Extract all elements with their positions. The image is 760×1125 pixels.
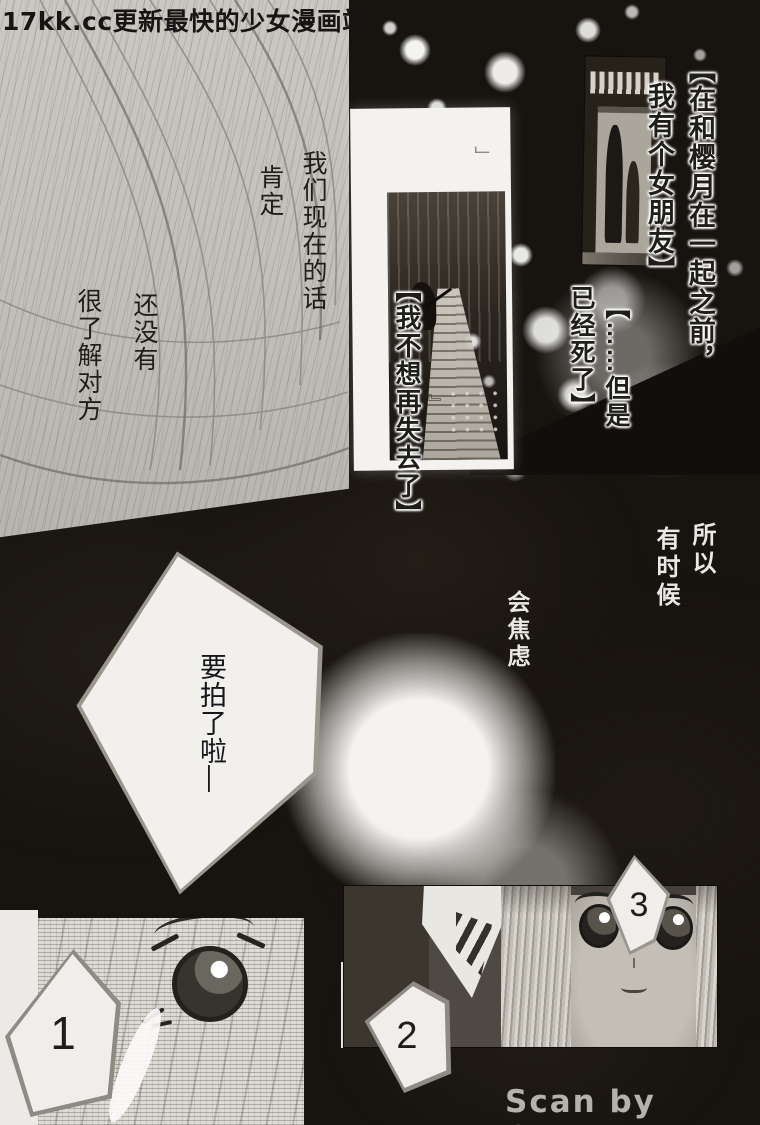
panel-number-1: 1: [50, 1006, 76, 1060]
monologue-current-line2: 肯定: [252, 164, 288, 218]
monologue-so-line1: 所以: [684, 522, 719, 578]
eye-closeup: [172, 946, 248, 1022]
crowd-dots: [447, 387, 503, 432]
short-figure-silhouette: [626, 161, 640, 243]
monologue-notyet-line2: 很了解对方: [70, 288, 106, 423]
caption-girlfriend-line2: 我有个女朋友】: [640, 82, 679, 285]
watermark-text: 17kk.cc更新最快的少女漫画站: [2, 2, 368, 38]
monologue-anxious: 会焦虑: [500, 590, 534, 671]
blonde-hair-right: [696, 886, 717, 1047]
monologue-so-line2: 有时候: [648, 526, 683, 610]
speech-photo-text: 要拍了啦—: [192, 653, 231, 793]
blonde-hair-left: [501, 886, 571, 1047]
tall-figure-silhouette: [605, 125, 624, 243]
quote-mark: 」: [468, 146, 497, 168]
monologue-notyet-line1: 还没有: [126, 292, 162, 373]
panel-number-3: 3: [630, 886, 649, 925]
monologue-current-line1: 我们现在的话: [295, 150, 331, 312]
mouth-line: [621, 980, 647, 993]
caption-dead-line1: 【……但是: [598, 294, 634, 429]
eyelash-icon: [236, 932, 265, 949]
panel-number-2: 2: [396, 1015, 417, 1058]
caption-girlfriend-line1: 【在和樱月在一起之前，: [681, 56, 720, 375]
caption-dead-line2: 已经死了】: [563, 285, 599, 420]
quote-tail-mark: 』: [423, 394, 449, 414]
manga-page: 17kk.cc更新最快的少女漫画站 我们现在的话 肯定 还没有 很了解对方 【在…: [0, 0, 760, 1125]
caption-lose-line: 【我不想再失去了】: [389, 276, 426, 528]
scanlation-credit: Scan by Osora: [505, 1084, 760, 1125]
nose-line: [633, 958, 635, 968]
